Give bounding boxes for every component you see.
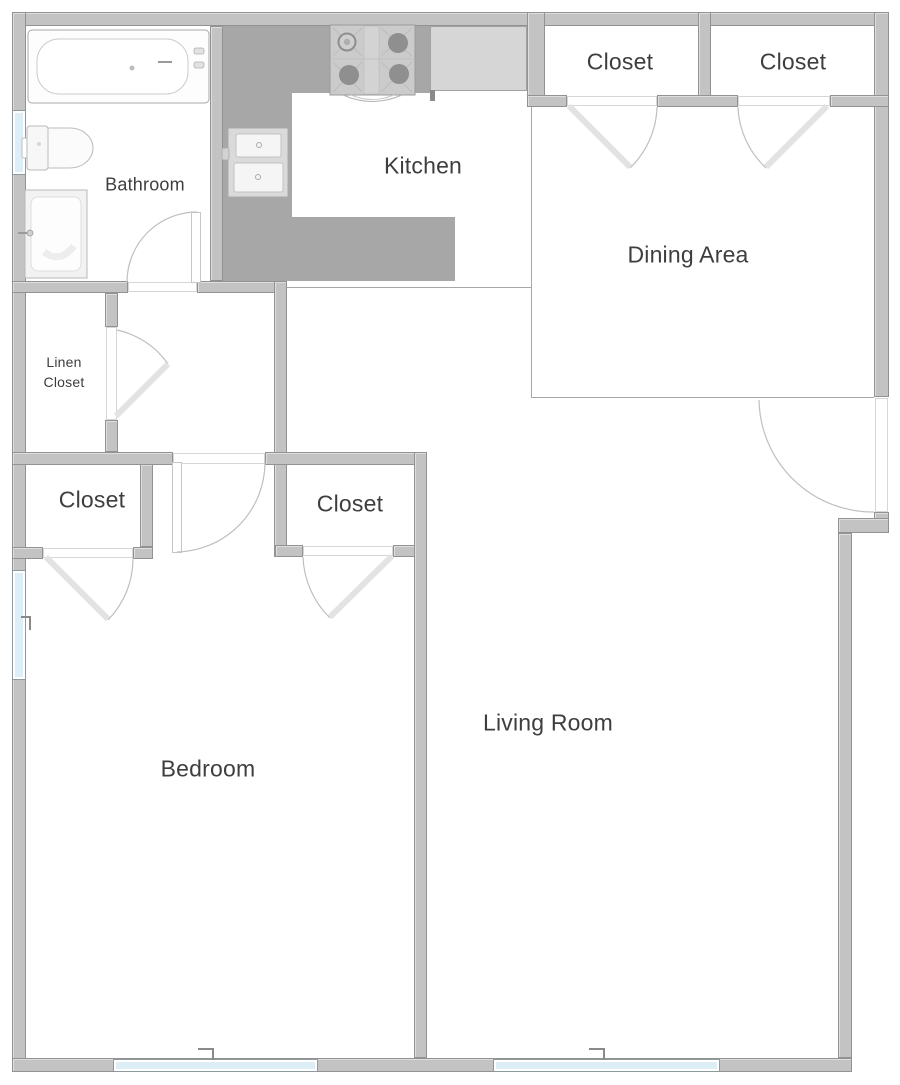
kitchen-sink	[222, 128, 288, 197]
linen-door-leaf	[116, 364, 168, 416]
leftcloset-door-leaf	[46, 557, 108, 619]
bathtub	[28, 30, 209, 103]
closet-bedroom-label: Closet	[317, 491, 383, 518]
hall-bedroom-door-arc	[177, 462, 265, 552]
linen-closet-label-line1: Linen	[46, 354, 81, 370]
closet-top-right-label: Closet	[760, 49, 826, 76]
bathroom-label: Bathroom	[105, 175, 185, 196]
midcloset-door-arc	[303, 557, 330, 618]
entry-door-arc	[759, 400, 874, 512]
topcloset1-door-arc	[630, 107, 657, 168]
leftcloset-door-arc	[108, 558, 133, 620]
closet-top-left-label: Closet	[587, 49, 653, 76]
midcloset-door-leaf	[330, 556, 392, 617]
floor-plan: Bathroom Kitchen Closet Closet Dining Ar…	[0, 0, 900, 1085]
linen-closet-label: Linen Closet	[44, 352, 85, 392]
dining-area-label: Dining Area	[627, 242, 748, 269]
linen-door-arc	[117, 330, 168, 364]
stove	[330, 25, 415, 102]
shower	[18, 190, 87, 278]
toilet	[22, 126, 93, 170]
closet-hall-label: Closet	[59, 487, 125, 514]
topcloset2-door-arc	[738, 107, 766, 168]
kitchen-label: Kitchen	[384, 153, 462, 180]
topcloset2-door-leaf	[766, 106, 827, 167]
bathroom-door-arc	[127, 212, 197, 282]
living-room-label: Living Room	[483, 710, 613, 737]
bedroom-label: Bedroom	[161, 756, 256, 783]
topcloset1-door-leaf	[569, 106, 630, 167]
linen-closet-label-line2: Closet	[44, 374, 85, 390]
